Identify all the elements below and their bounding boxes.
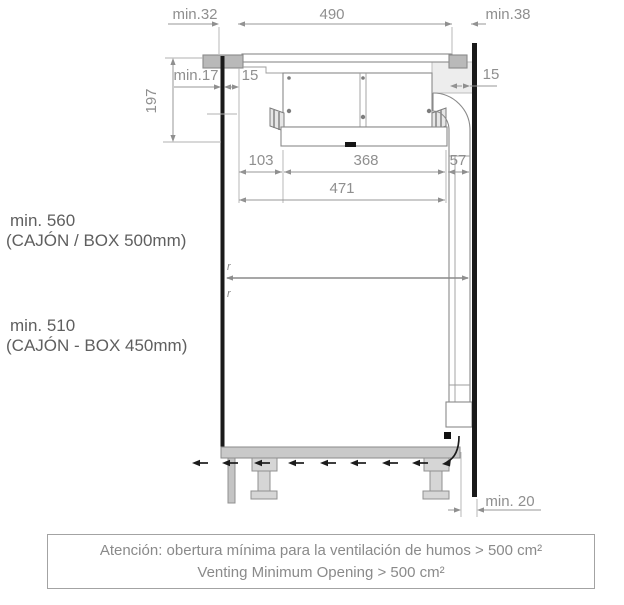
dim-min17: min.17 xyxy=(173,67,218,84)
dim-min20: min. 20 xyxy=(485,493,534,510)
dim-15-left: 15 xyxy=(242,67,259,84)
cabinet-leg xyxy=(251,458,277,499)
cabinet-bottom-panel xyxy=(221,447,460,458)
radius-mark: r xyxy=(227,261,232,273)
label-lower-height: min. 510 xyxy=(10,316,75,335)
screw-icon xyxy=(361,76,365,80)
label-lower-note: (CAJÓN - BOX 450mm) xyxy=(6,336,187,355)
screw-icon xyxy=(287,109,291,113)
arrow-left-icon xyxy=(382,460,398,467)
attention-note-box: Atención: obertura mínima para la ventil… xyxy=(47,534,595,589)
installation-diagram: min.32 490 min.38 197 min.17 15 15 xyxy=(0,0,624,605)
cabinet-section-labels: min. 560 (CAJÓN / BOX 500mm) min. 510 (C… xyxy=(6,211,187,355)
dim-103: 103 xyxy=(248,152,273,169)
duct-outlet xyxy=(444,432,451,439)
arrow-left-icon xyxy=(350,460,366,467)
screw-icon xyxy=(361,115,365,119)
dim-490: 490 xyxy=(319,6,344,23)
screw-icon xyxy=(287,76,291,80)
label-upper-note: (CAJÓN / BOX 500mm) xyxy=(6,231,186,250)
arrow-left-icon xyxy=(288,460,304,467)
hob-bottom-tray xyxy=(281,127,447,146)
dim-471: 471 xyxy=(329,180,354,197)
dim-min32: min.32 xyxy=(172,6,217,23)
section-drawing: min.32 490 min.38 197 min.17 15 15 xyxy=(0,0,624,530)
radius-mark: r xyxy=(227,288,232,300)
dim-15-right: 15 xyxy=(483,66,500,83)
connector-block xyxy=(345,142,356,147)
attention-note-line2: Venting Minimum Opening > 500 cm² xyxy=(197,562,444,584)
attention-note-line1: Atención: obertura mínima para la ventil… xyxy=(100,540,542,562)
dim-368: 368 xyxy=(353,152,378,169)
arrow-left-icon xyxy=(320,460,336,467)
label-upper-height: min. 560 xyxy=(10,211,75,230)
hob-unit xyxy=(270,73,447,147)
dim-197: 197 xyxy=(143,88,160,113)
arrow-left-icon xyxy=(222,460,238,467)
dim-min38: min.38 xyxy=(485,6,530,23)
arrow-left-icon xyxy=(192,460,208,467)
screw-icon xyxy=(427,109,431,113)
dim-57: 57 xyxy=(450,152,467,169)
